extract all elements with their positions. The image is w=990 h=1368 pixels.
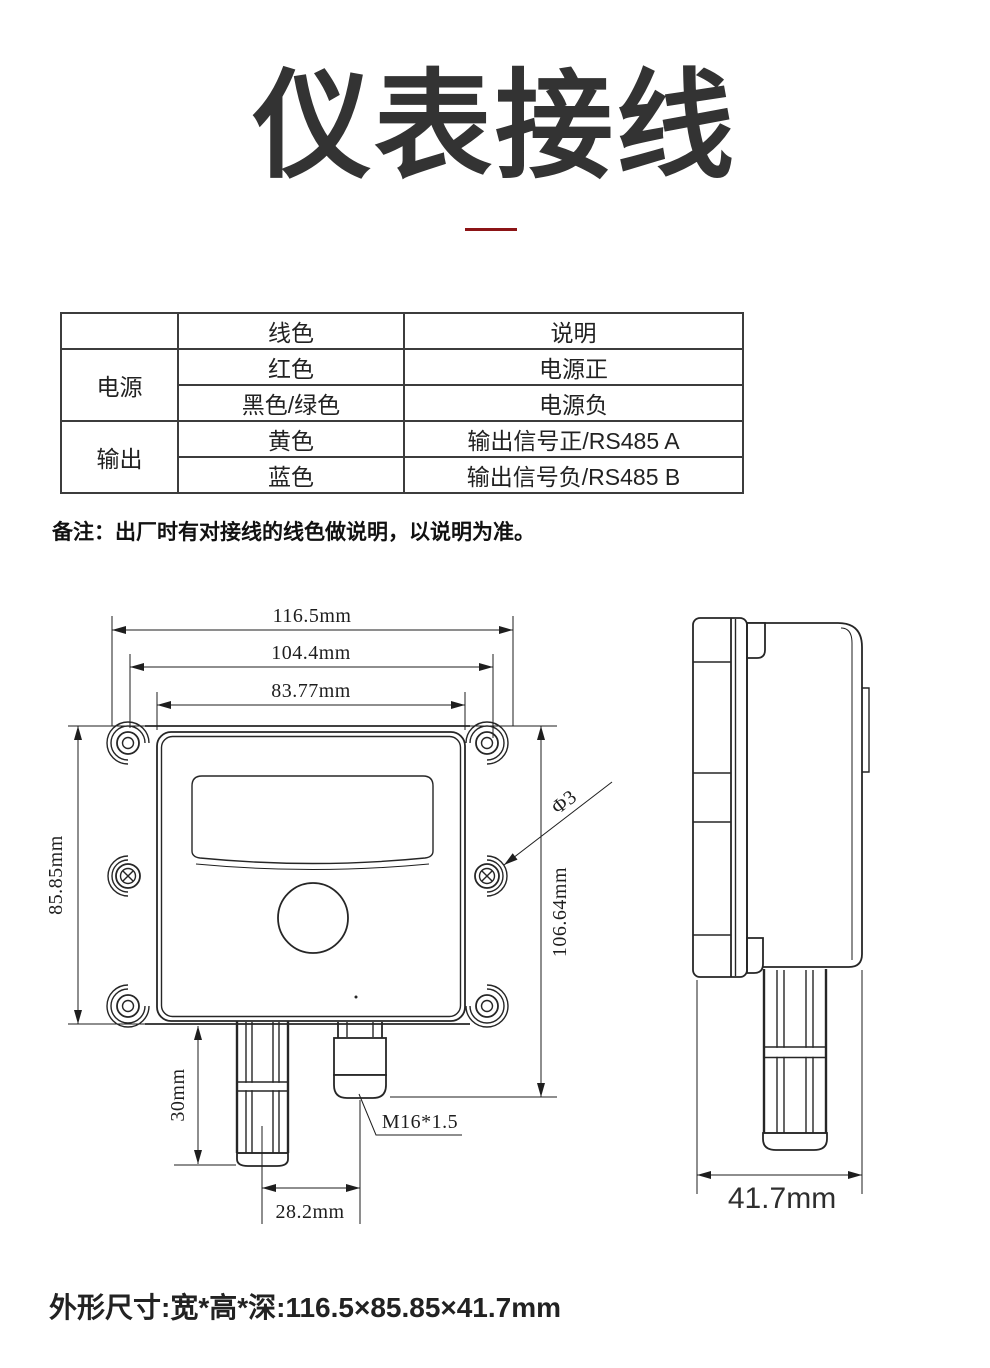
- corner-lug-bottom-right: [466, 985, 508, 1027]
- dim-width-83: 83.77mm: [157, 680, 465, 730]
- svg-text:106.64mm: 106.64mm: [549, 867, 571, 957]
- mold-dot: [355, 996, 358, 999]
- table-row: 输出 黄色 输出信号正/RS485 A: [61, 421, 743, 457]
- svg-text:104.4mm: 104.4mm: [271, 642, 351, 664]
- svg-text:41.7mm: 41.7mm: [728, 1182, 836, 1215]
- probe-side: [763, 969, 827, 1150]
- mounting-flange: [693, 618, 747, 977]
- side-body: [747, 623, 862, 967]
- svg-text:28.2mm: 28.2mm: [275, 1201, 344, 1223]
- hole-callout: Φ3: [504, 782, 612, 865]
- cell-description: 输出信号正/RS485 A: [404, 421, 743, 457]
- screw-boss-left: [108, 856, 140, 896]
- svg-text:M16*1.5: M16*1.5: [382, 1111, 458, 1133]
- screw-boss-right: [475, 856, 507, 896]
- dimension-drawing: 116.5mm 104.4mm 83.77mm 85.85mm 106.64mm: [0, 570, 990, 1270]
- cell-wire-color: 黄色: [178, 421, 404, 457]
- title-divider: [465, 228, 517, 231]
- header-cell-empty: [61, 313, 178, 349]
- front-view: 116.5mm 104.4mm 83.77mm 85.85mm 106.64mm: [45, 605, 612, 1224]
- wiring-table: 线色 说明 电源 红色 电源正 黑色/绿色 电源负 输出 黄色 输出信号正/RS…: [60, 312, 744, 494]
- svg-text:30mm: 30mm: [167, 1068, 189, 1121]
- cell-wire-color: 红色: [178, 349, 404, 385]
- dim-probe-30: 30mm: [167, 1026, 236, 1165]
- group-cell-power: 电源: [61, 349, 178, 421]
- table-row: 电源 红色 电源正: [61, 349, 743, 385]
- cell-description: 电源负: [404, 385, 743, 421]
- page-title: 仪表接线: [0, 68, 990, 186]
- group-cell-output: 输出: [61, 421, 178, 493]
- cell-description: 输出信号负/RS485 B: [404, 457, 743, 493]
- gland-callout: M16*1.5: [359, 1094, 462, 1135]
- cell-wire-color: 黑色/绿色: [178, 385, 404, 421]
- cable-gland: [334, 1022, 386, 1098]
- svg-text:85.85mm: 85.85mm: [45, 835, 67, 915]
- svg-text:116.5mm: 116.5mm: [273, 605, 352, 627]
- dim-depth: 41.7mm: [697, 970, 862, 1215]
- corner-lug-top-left: [107, 722, 149, 764]
- svg-text:83.77mm: 83.77mm: [271, 680, 351, 702]
- cell-wire-color: 蓝色: [178, 457, 404, 493]
- wiring-note: 备注：出厂时有对接线的线色做说明，以说明为准。: [52, 516, 535, 546]
- side-view: 41.7mm: [693, 618, 869, 1215]
- svg-text:Φ3: Φ3: [547, 786, 581, 819]
- overall-dimensions: 外形尺寸:宽*高*深:116.5×85.85×41.7mm: [49, 1286, 561, 1326]
- dim-width-116: 116.5mm: [112, 605, 513, 726]
- header-cell-wire-color: 线色: [178, 313, 404, 349]
- corner-lug-top-right: [466, 722, 508, 764]
- table-header-row: 线色 说明: [61, 313, 743, 349]
- corner-lug-bottom-left: [107, 985, 149, 1027]
- cell-description: 电源正: [404, 349, 743, 385]
- header-cell-description: 说明: [404, 313, 743, 349]
- dim-height-85: 85.85mm: [45, 726, 78, 1024]
